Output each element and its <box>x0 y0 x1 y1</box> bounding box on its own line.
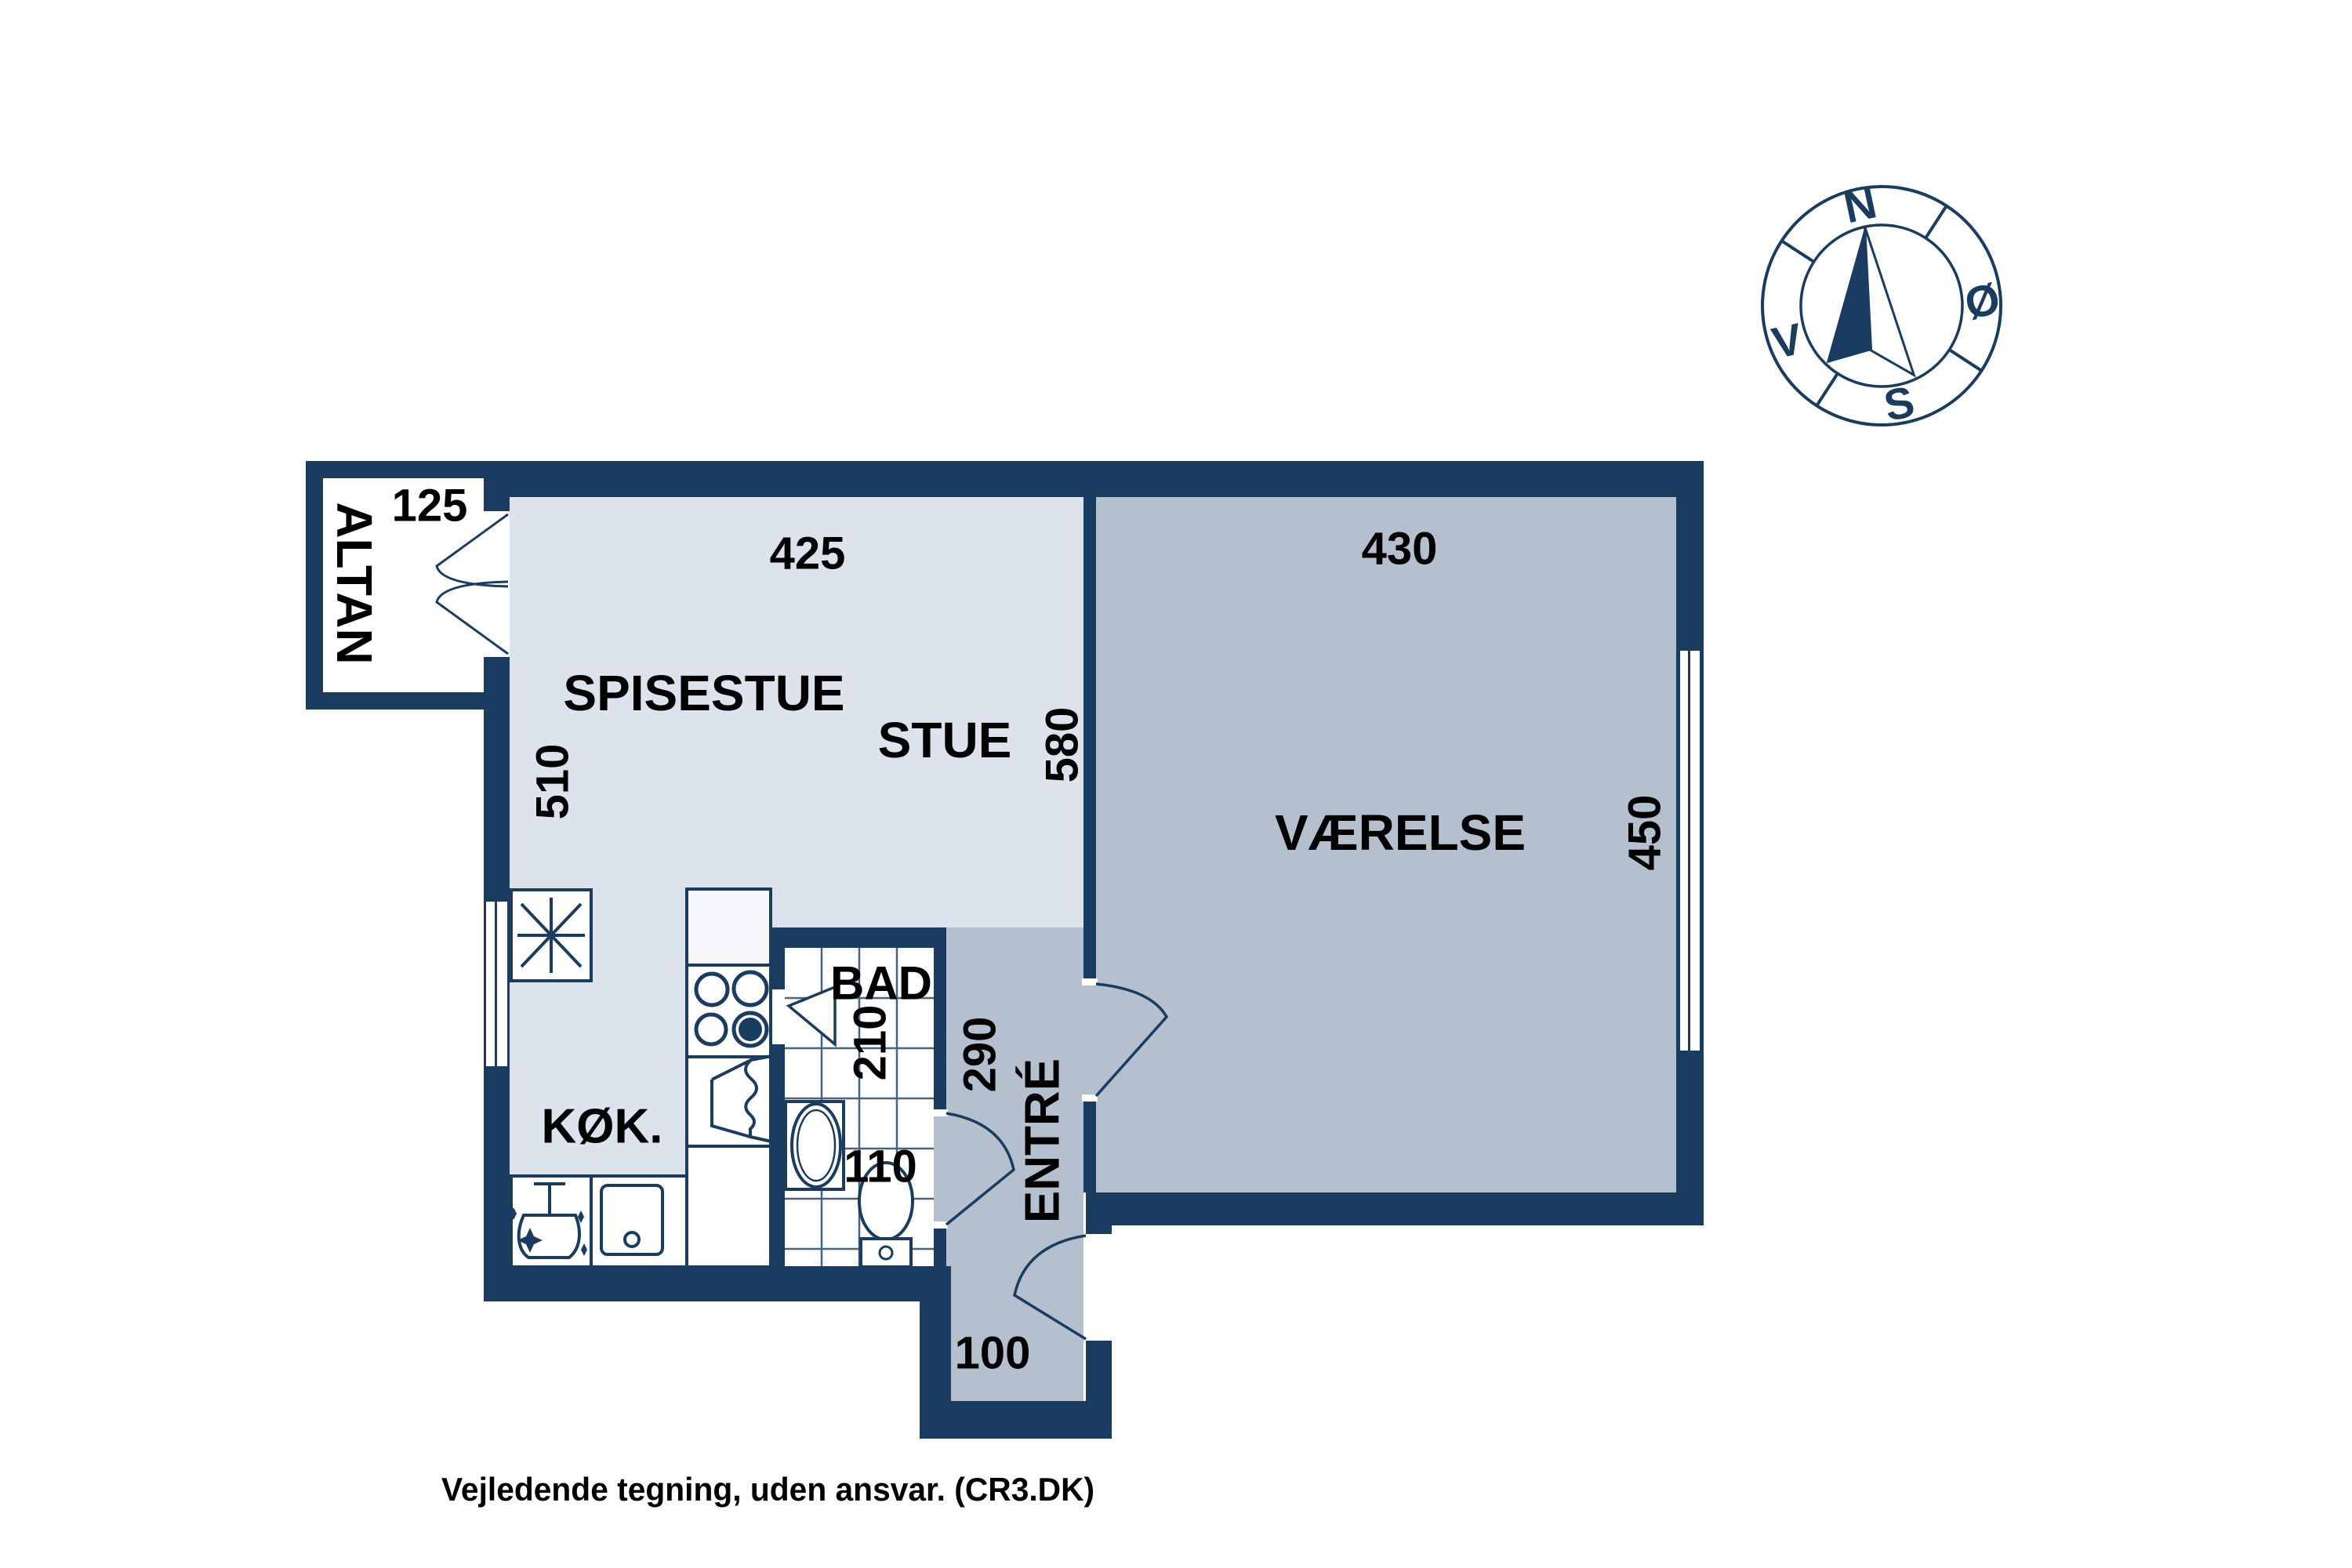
compass-rose: N S V Ø <box>1738 156 2024 452</box>
entry-label: ENTRÉ <box>1015 1058 1071 1223</box>
entry-dim: 290 <box>954 1017 1007 1093</box>
balcony-label: ALTAN <box>325 502 383 664</box>
bedroom-label: VÆRELSE <box>1275 804 1526 862</box>
bedroom-dim-top: 430 <box>1362 523 1438 575</box>
disclaimer-text: Vejledende tegning, uden ansvar. (CR3.DK… <box>441 1471 1094 1508</box>
kitchen-label: KØK. <box>542 1099 663 1155</box>
wardrobe-star-icon <box>517 898 585 973</box>
hand-basin-icon <box>510 1184 587 1258</box>
compass-label-s: S <box>1880 376 1919 430</box>
kitchen-sink-icon <box>712 1056 771 1142</box>
dining-dim-top: 425 <box>770 528 846 580</box>
bath-inner-door-leaf <box>789 987 835 1044</box>
bath-basin-icon <box>786 1102 844 1189</box>
living-dim-right: 580 <box>1036 707 1089 783</box>
entry-door-swing <box>1014 1236 1086 1339</box>
balcony-dim: 125 <box>392 480 468 532</box>
floor-plan-canvas: N S V Ø ALTAN 125 425 SPISESTUE STUE 510… <box>0 0 2352 1568</box>
hall-dim: 100 <box>955 1327 1031 1380</box>
dining-label: SPISESTUE <box>563 664 844 722</box>
symbol-overlay: N S V Ø <box>0 0 2352 1568</box>
bath-door-swing <box>946 1113 1014 1225</box>
balcony-door-swing <box>437 514 508 654</box>
bath-label: BAD <box>830 956 932 1011</box>
hob-burners-icon <box>696 972 767 1046</box>
bedroom-dim-right: 450 <box>1619 795 1671 871</box>
bath-dim-upper: 210 <box>844 1005 897 1081</box>
dining-dim-left: 510 <box>527 744 579 820</box>
bedroom-door-swing <box>1096 984 1167 1096</box>
washing-machine-icon <box>601 1185 662 1254</box>
living-label: STUE <box>878 711 1012 769</box>
bath-dim-lower: 110 <box>844 1141 917 1193</box>
